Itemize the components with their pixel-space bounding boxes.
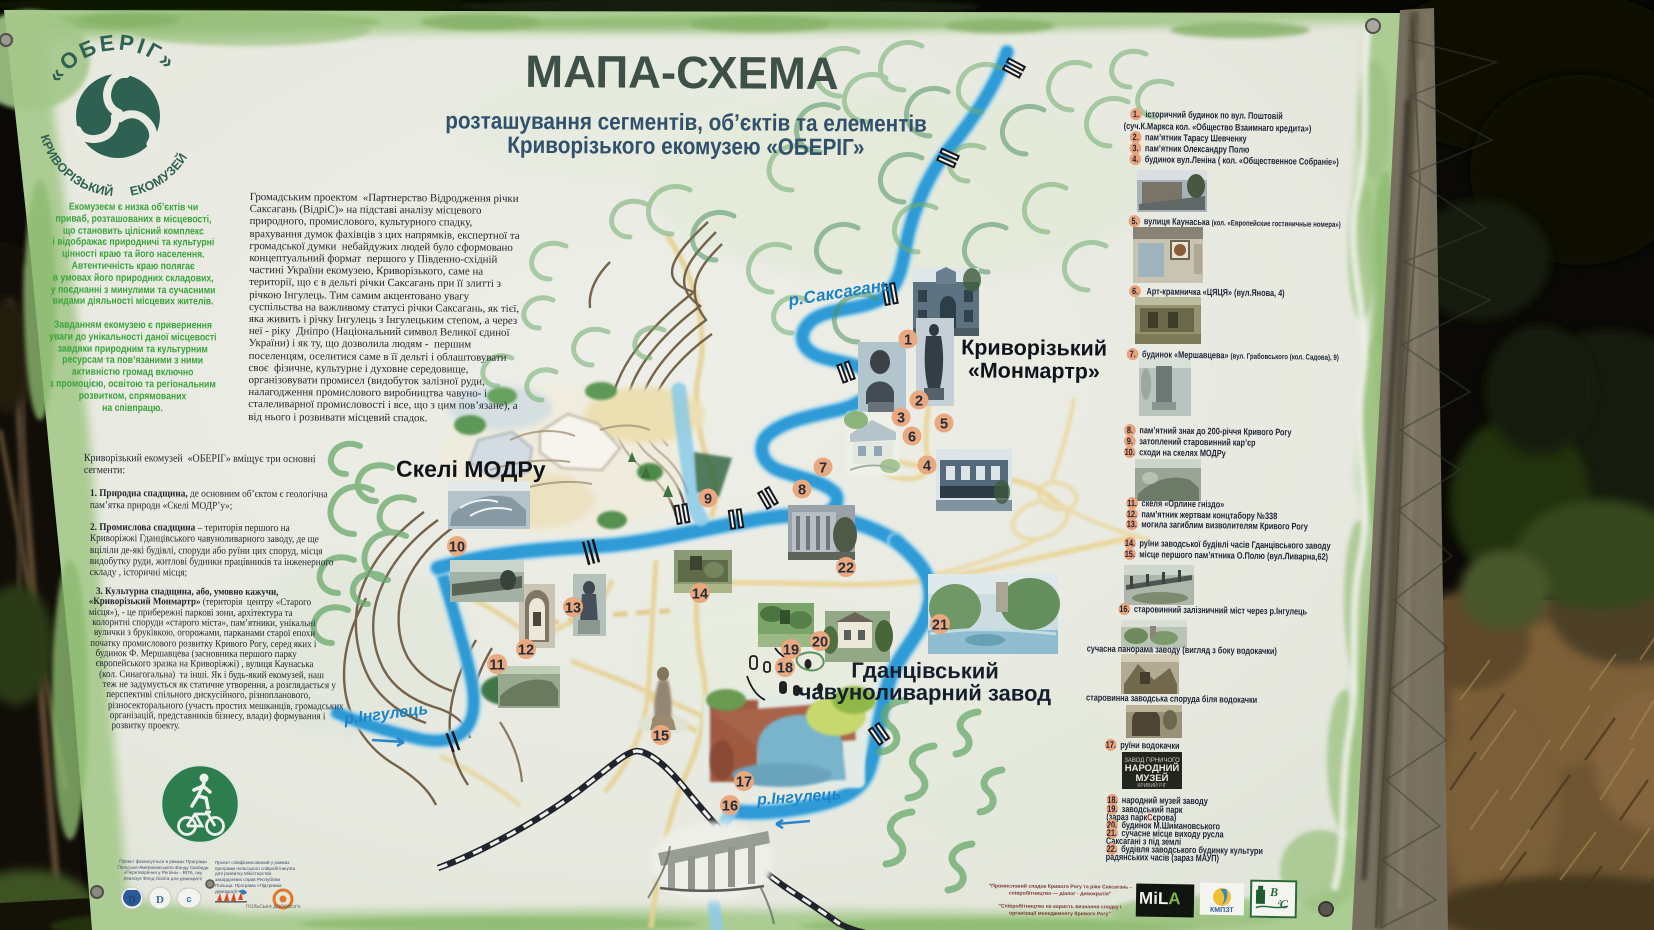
svg-text:В: В: [1269, 885, 1278, 899]
svg-text:7: 7: [819, 461, 827, 477]
svg-text:3: 3: [897, 411, 905, 427]
svg-text:2: 2: [915, 394, 923, 410]
svg-text:17: 17: [736, 775, 752, 791]
svg-text:9: 9: [704, 492, 712, 508]
svg-text:КМПЗТ: КМПЗТ: [1210, 907, 1234, 914]
svg-text:4: 4: [923, 459, 931, 475]
svg-text:14: 14: [692, 587, 708, 603]
svg-text:16: 16: [722, 799, 738, 815]
svg-text:ЕКОМУЗЕЙ: ЕКОМУЗЕЙ: [129, 150, 190, 198]
svg-text:21: 21: [932, 618, 948, 634]
svg-text:D: D: [128, 895, 135, 906]
svg-text:20: 20: [812, 635, 828, 651]
svg-text:8: 8: [798, 483, 806, 499]
svg-text:С: С: [1280, 897, 1289, 911]
svg-text:1: 1: [904, 333, 912, 349]
svg-text:13: 13: [565, 601, 581, 617]
svg-text:6: 6: [908, 430, 916, 446]
svg-text:11: 11: [489, 658, 504, 674]
svg-text:5: 5: [940, 417, 948, 433]
svg-text:D: D: [156, 894, 164, 906]
svg-text:18: 18: [777, 661, 793, 677]
svg-text:12: 12: [518, 643, 534, 659]
svg-text:22: 22: [838, 561, 854, 577]
svg-text:15: 15: [653, 729, 669, 745]
svg-text:19: 19: [783, 643, 799, 659]
svg-text:c: c: [186, 894, 191, 904]
svg-text:КРИВИЙ РІГ: КРИВИЙ РІГ: [1137, 781, 1166, 789]
svg-text:10: 10: [449, 540, 465, 556]
